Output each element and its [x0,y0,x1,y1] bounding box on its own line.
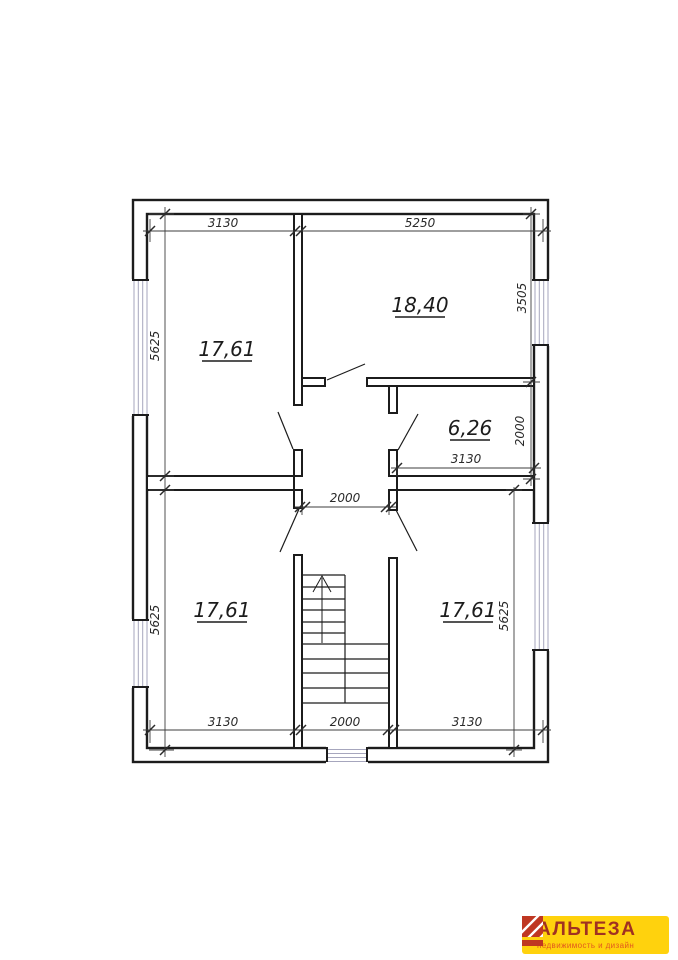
dim-top-right-width: 5250 [405,216,436,230]
window-left-bottom [131,619,149,688]
window-right-top [532,279,550,346]
area-bottom-left-room: 17,61 [193,598,250,622]
floor-plan-drawing: 3130 5250 5625 5625 3505 2000 5625 3130 … [0,0,678,960]
company-logo: АЛЬТЕЗА недвижимость и дизайн [522,916,669,954]
dim-bottom-right-width: 3130 [452,715,483,729]
window-bottom-center [326,746,368,764]
logo-title: АЛЬТЕЗА [537,920,636,939]
floor-plan-page: 3130 5250 5625 5625 3505 2000 5625 3130 … [0,0,678,960]
brick-icon [522,916,544,946]
area-bottom-right-room: 17,61 [439,598,496,622]
dim-left-bottom-height: 5625 [148,605,162,636]
dim-hall-width: 2000 [330,491,361,505]
dim-left-top-height: 5625 [148,331,162,362]
dim-bottom-left-width: 3130 [208,715,239,729]
window-right-bottom [532,522,550,651]
area-mid-right-room: 6,26 [448,416,493,440]
dim-bottom-center-width: 2000 [330,715,361,729]
area-top-right-room: 18,40 [391,293,448,317]
window-left-top [131,279,149,416]
dim-right-mid-height: 2000 [513,415,527,446]
dim-right-bottom-height: 5625 [497,601,511,632]
dim-room626-width: 3130 [451,452,482,466]
area-top-left-room: 17,61 [198,337,255,361]
dim-right-top-height: 3505 [515,283,529,314]
dim-top-left-width: 3130 [208,216,239,230]
logo-subtitle: недвижимость и дизайн [537,941,636,950]
